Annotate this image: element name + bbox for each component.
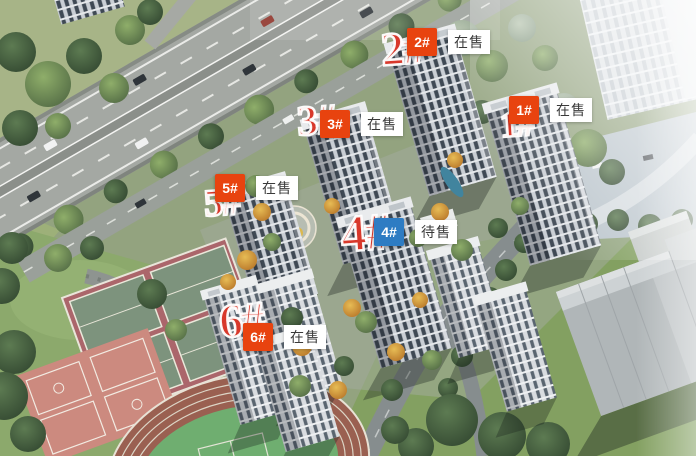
building-1-status-badge: 在售	[550, 98, 592, 122]
building-3-status-badge: 在售	[361, 112, 403, 136]
building-2-status-badge: 在售	[448, 30, 490, 54]
building-3-number-tag[interactable]: 3#	[320, 110, 350, 138]
building-6-marker[interactable]: 6# 在售	[243, 323, 326, 351]
building-3-marker[interactable]: 3# 在售	[320, 110, 403, 138]
building-5-marker[interactable]: 5# 在售	[215, 174, 298, 202]
aerial-rendering	[0, 0, 696, 456]
building-1-number-tag[interactable]: 1#	[509, 96, 539, 124]
building-5-number-tag[interactable]: 5#	[215, 174, 245, 202]
building-4-marker[interactable]: 4# 待售	[374, 218, 457, 246]
building-4-status-badge: 待售	[415, 220, 457, 244]
building-6-status-badge: 在售	[284, 325, 326, 349]
building-2-marker[interactable]: 2# 在售	[407, 28, 490, 56]
building-2-number-tag[interactable]: 2#	[407, 28, 437, 56]
building-5-status-badge: 在售	[256, 176, 298, 200]
building-4-number-tag[interactable]: 4#	[374, 218, 404, 246]
building-1-marker[interactable]: 1# 在售	[509, 96, 592, 124]
building-6-number-tag[interactable]: 6#	[243, 323, 273, 351]
site-plan-image: 1# 2# 3# 4# 5# 6# 1# 在售 2# 在售 3# 在售 4# 待…	[0, 0, 696, 456]
